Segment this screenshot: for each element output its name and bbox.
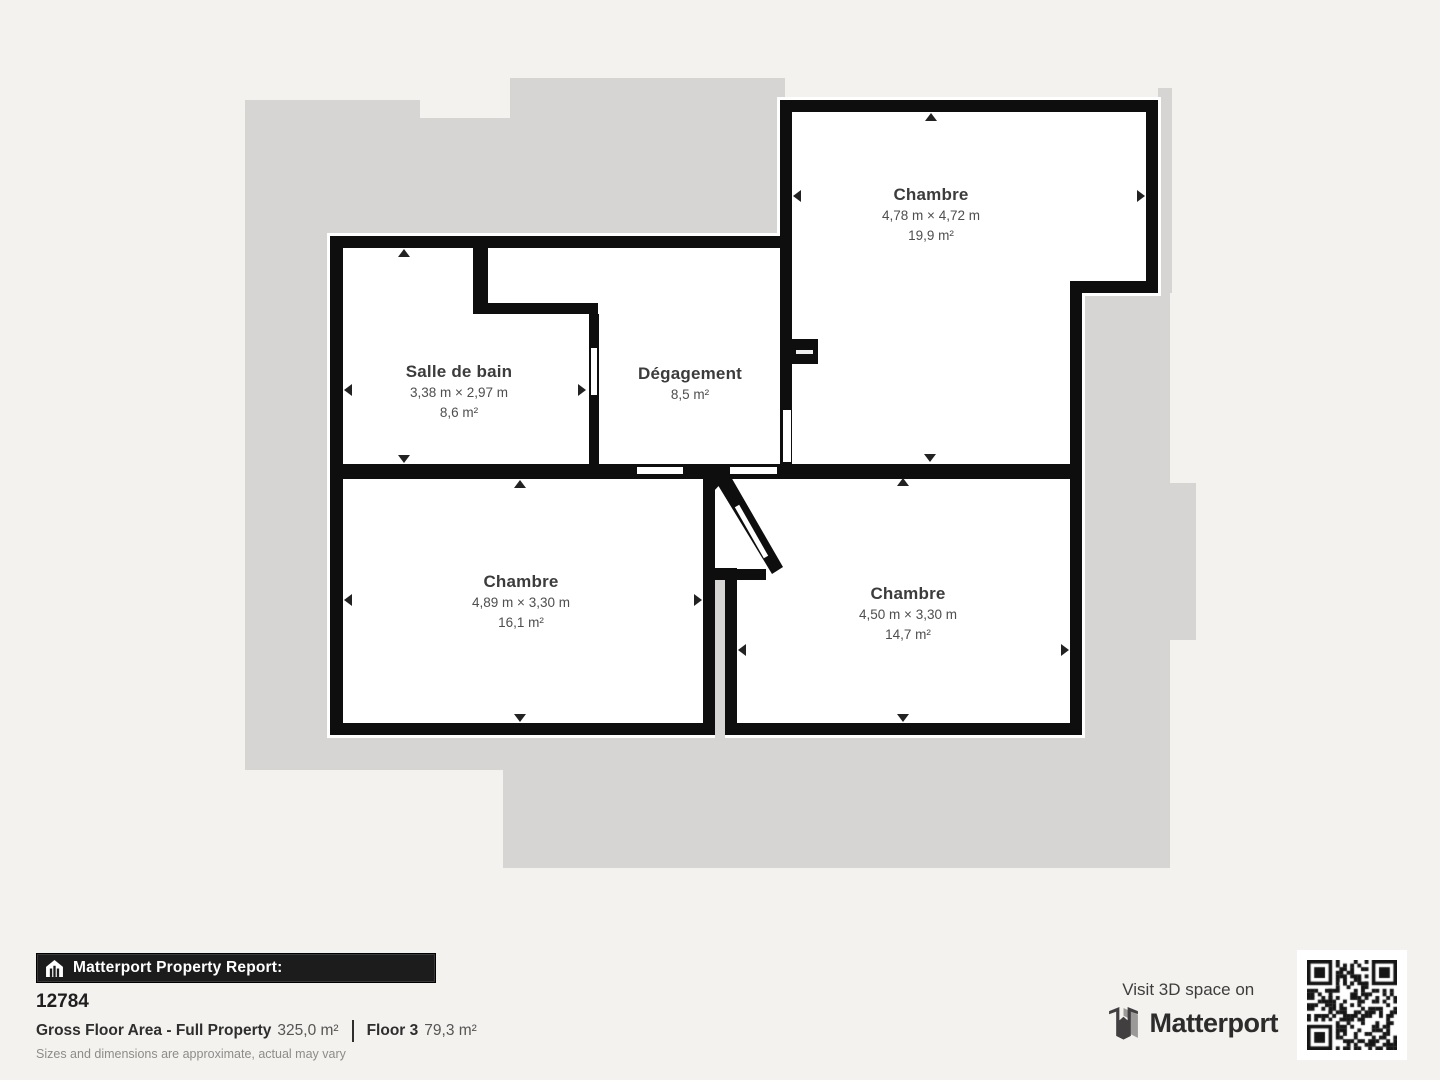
report-title-bar: Matterport Property Report: bbox=[36, 953, 436, 983]
matterport-logo[interactable]: Matterport bbox=[1107, 1006, 1279, 1041]
property-report-page: Chambre 4,78 m × 4,72 m 19,9 m² Salle de… bbox=[0, 0, 1440, 1080]
floor-label: Floor 3 bbox=[367, 1022, 419, 1040]
room-dimensions: 4,89 m × 3,30 m bbox=[472, 594, 570, 612]
door-opening-chambre-br bbox=[730, 467, 777, 474]
room-name: Salle de bain bbox=[406, 362, 513, 382]
room-area-chambre-tr-lower bbox=[792, 281, 1070, 464]
room-dimensions: 4,78 m × 4,72 m bbox=[882, 207, 980, 225]
report-title: Matterport Property Report: bbox=[73, 959, 283, 977]
matterport-promo: Visit 3D space on Matterport bbox=[1107, 980, 1279, 1041]
room-label-chambre-bottom-right: Chambre 4,50 m × 3,30 m 14,7 m² bbox=[859, 584, 957, 643]
room-label-chambre-bottom-left: Chambre 4,89 m × 3,30 m 16,1 m² bbox=[472, 572, 570, 631]
matterport-wordmark: Matterport bbox=[1150, 1008, 1279, 1039]
room-name: Chambre bbox=[859, 584, 957, 604]
door-opening-salle-de-bain bbox=[591, 348, 597, 395]
room-area: 8,6 m² bbox=[406, 404, 513, 422]
floor-area-line: Gross Floor Area - Full Property 325,0 m… bbox=[36, 1020, 477, 1042]
wall-stub bbox=[792, 339, 818, 364]
room-area: 14,7 m² bbox=[859, 626, 957, 644]
room-area: 19,9 m² bbox=[882, 227, 980, 245]
qr-pattern bbox=[1307, 960, 1397, 1050]
room-name: Chambre bbox=[472, 572, 570, 592]
stair-void-strip bbox=[715, 580, 725, 757]
room-label-salle-de-bain: Salle de bain 3,38 m × 2,97 m 8,6 m² bbox=[406, 362, 513, 421]
room-area: 8,5 m² bbox=[638, 386, 742, 404]
disclaimer-text: Sizes and dimensions are approximate, ac… bbox=[36, 1047, 346, 1061]
room-name: Chambre bbox=[882, 185, 980, 205]
room-dimensions: 3,38 m × 2,97 m bbox=[406, 384, 513, 402]
room-area-left-block bbox=[343, 248, 780, 464]
room-label-chambre-top-right: Chambre 4,78 m × 4,72 m 19,9 m² bbox=[882, 185, 980, 244]
gfa-value: 325,0 m² bbox=[277, 1022, 338, 1040]
visit-3d-text: Visit 3D space on bbox=[1107, 980, 1271, 1000]
building-icon bbox=[45, 959, 64, 978]
floor-value: 79,3 m² bbox=[424, 1022, 477, 1040]
property-id: 12784 bbox=[36, 991, 89, 1013]
gfa-label: Gross Floor Area - Full Property bbox=[36, 1022, 271, 1040]
room-name: Dégagement bbox=[638, 364, 742, 384]
divider bbox=[352, 1020, 354, 1042]
room-dimensions: 4,50 m × 3,30 m bbox=[859, 606, 957, 624]
room-area: 16,1 m² bbox=[472, 614, 570, 632]
room-label-degagement: Dégagement 8,5 m² bbox=[638, 364, 742, 404]
qr-code[interactable] bbox=[1297, 950, 1407, 1060]
door-opening-chambre-bl bbox=[637, 467, 683, 474]
floor-plan bbox=[0, 0, 1440, 920]
matterport-m-icon bbox=[1107, 1006, 1140, 1041]
door-opening-chambre-tr bbox=[783, 410, 791, 462]
